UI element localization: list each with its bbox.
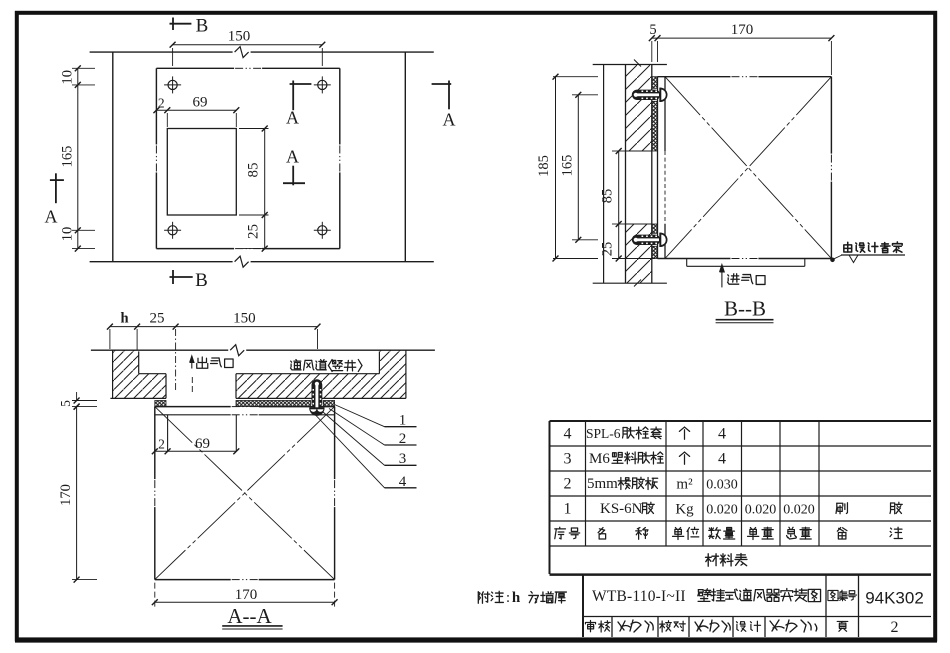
- svg-text:150: 150: [233, 311, 256, 327]
- svg-text:25: 25: [150, 311, 165, 327]
- svg-text:2: 2: [158, 96, 165, 111]
- svg-text:3: 3: [399, 451, 407, 467]
- svg-text:4: 4: [564, 426, 572, 443]
- svg-text:2: 2: [158, 437, 165, 452]
- svg-text:A: A: [443, 110, 456, 130]
- svg-text:m²: m²: [676, 477, 693, 493]
- svg-text:10: 10: [60, 227, 76, 242]
- svg-text:0.020: 0.020: [783, 503, 815, 518]
- svg-text::: :: [506, 590, 510, 606]
- svg-text:h: h: [120, 311, 128, 327]
- svg-text:3: 3: [564, 451, 572, 468]
- svg-text:Kg: Kg: [675, 502, 694, 518]
- svg-text:B: B: [195, 270, 208, 291]
- svg-text:94K302: 94K302: [865, 589, 924, 608]
- svg-text:85: 85: [600, 189, 616, 204]
- svg-text:185: 185: [536, 155, 552, 177]
- svg-text:A: A: [45, 207, 58, 227]
- svg-text:4: 4: [399, 474, 407, 490]
- svg-text:25: 25: [246, 224, 262, 239]
- svg-text:170: 170: [58, 484, 74, 506]
- svg-text:M6: M6: [589, 451, 610, 467]
- svg-text:170: 170: [731, 22, 754, 38]
- svg-text:A--A: A--A: [227, 604, 272, 628]
- svg-text:KS-6N: KS-6N: [600, 501, 643, 517]
- svg-text:5mm: 5mm: [587, 476, 618, 492]
- svg-text:69: 69: [193, 95, 208, 111]
- svg-text:165: 165: [60, 146, 76, 168]
- svg-text:0.030: 0.030: [706, 478, 738, 493]
- svg-text:0.020: 0.020: [745, 503, 777, 518]
- svg-text:1: 1: [399, 412, 407, 428]
- svg-text:4: 4: [718, 426, 726, 443]
- svg-text:2: 2: [891, 619, 899, 636]
- svg-text:85: 85: [246, 163, 262, 178]
- svg-text:h: h: [512, 590, 521, 606]
- svg-text:25: 25: [600, 242, 616, 257]
- svg-text:5: 5: [58, 400, 73, 407]
- svg-text:A: A: [286, 147, 299, 167]
- svg-text:0.020: 0.020: [706, 503, 738, 518]
- svg-text:A: A: [286, 108, 299, 128]
- svg-text:69: 69: [195, 436, 210, 452]
- svg-text:4: 4: [718, 451, 726, 468]
- svg-text:10: 10: [60, 70, 76, 85]
- svg-text:165: 165: [560, 155, 576, 177]
- svg-text:SPL-6: SPL-6: [586, 426, 621, 441]
- svg-text:1: 1: [564, 501, 572, 518]
- svg-text:150: 150: [228, 29, 251, 45]
- svg-text:2: 2: [564, 476, 572, 493]
- svg-text:B--B: B--B: [724, 297, 766, 321]
- svg-text:B: B: [196, 16, 209, 37]
- svg-text:2: 2: [399, 431, 407, 447]
- svg-text:WTB-110-I~II: WTB-110-I~II: [592, 588, 686, 605]
- svg-text:5: 5: [649, 22, 656, 38]
- svg-text:170: 170: [235, 587, 258, 603]
